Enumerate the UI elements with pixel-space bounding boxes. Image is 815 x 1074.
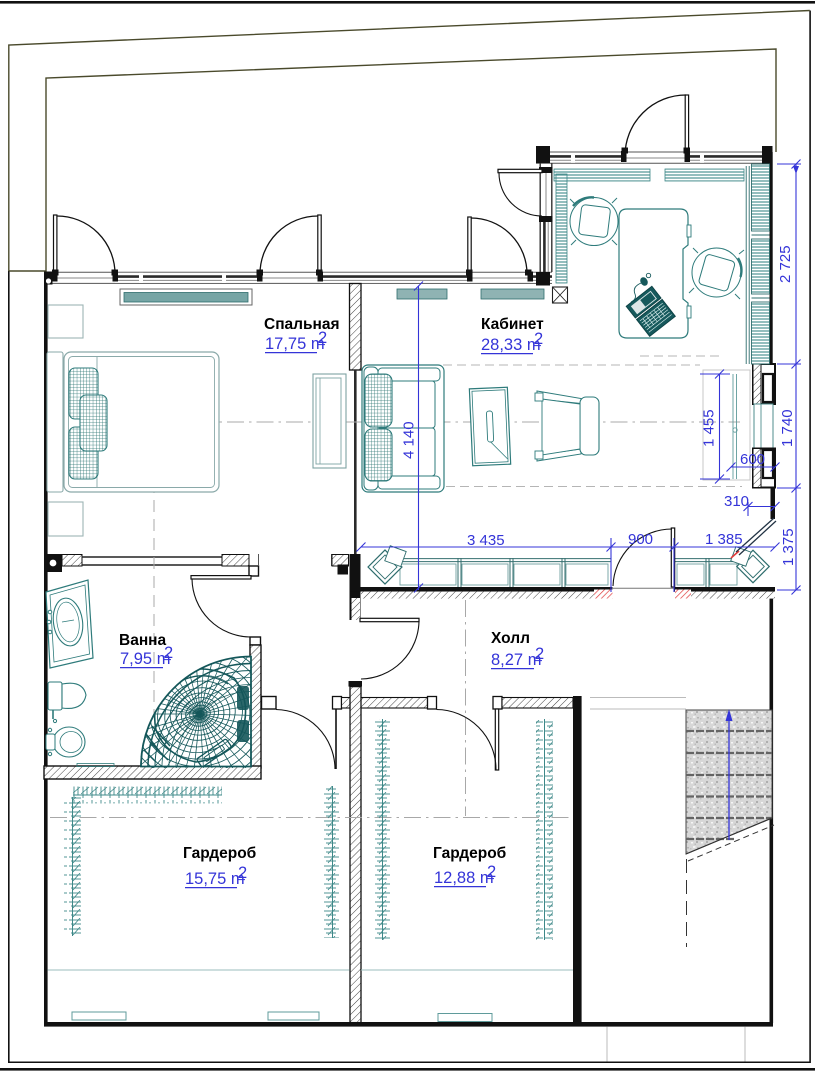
- svg-text:7,95 m: 7,95 m: [120, 650, 170, 668]
- svg-text:2 725: 2 725: [777, 245, 794, 283]
- svg-text:Ванна: Ванна: [119, 632, 167, 649]
- svg-text:310: 310: [724, 493, 749, 510]
- svg-text:15,75 m: 15,75 m: [185, 870, 245, 888]
- svg-text:600: 600: [740, 451, 765, 468]
- svg-text:28,33 m: 28,33 m: [481, 336, 541, 354]
- svg-text:1 375: 1 375: [780, 528, 797, 566]
- svg-text:Гардероб: Гардероб: [433, 845, 506, 862]
- svg-text:900: 900: [628, 531, 653, 548]
- svg-text:1 740: 1 740: [779, 409, 796, 447]
- svg-text:1 455: 1 455: [701, 409, 718, 447]
- svg-text:4 140: 4 140: [401, 421, 418, 459]
- svg-text:1 385: 1 385: [705, 531, 743, 548]
- svg-text:12,88 m: 12,88 m: [434, 869, 494, 887]
- svg-text:8,27 m: 8,27 m: [491, 651, 541, 669]
- svg-text:Спальная: Спальная: [264, 316, 340, 333]
- svg-text:Холл: Холл: [491, 630, 530, 647]
- svg-text:3 435: 3 435: [467, 532, 505, 549]
- svg-text:17,75 m: 17,75 m: [265, 335, 325, 353]
- svg-text:Гардероб: Гардероб: [183, 845, 256, 862]
